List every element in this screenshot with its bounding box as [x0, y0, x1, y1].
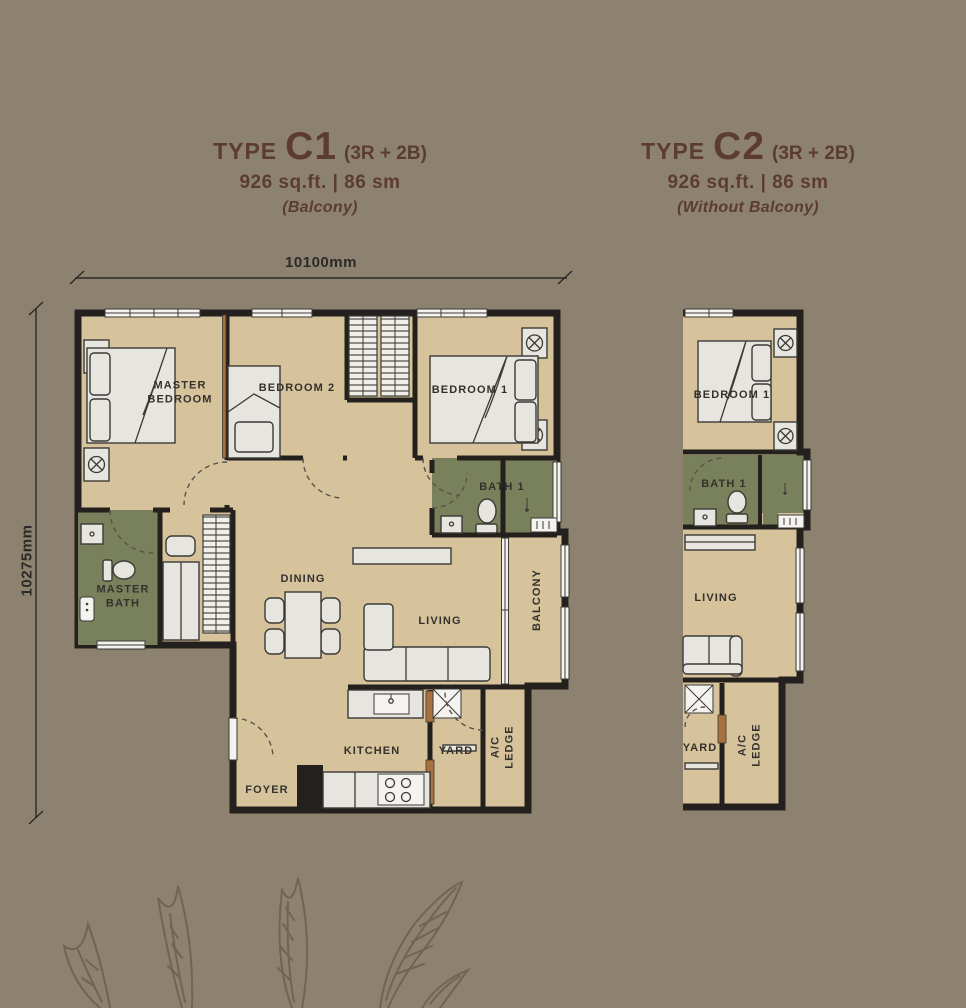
- c1-label-kitchen: KITCHEN: [327, 744, 417, 758]
- type-c2-area: 926 sq.ft. | 86 sm: [553, 172, 943, 194]
- type-c1-config: (3R + 2B): [344, 143, 427, 164]
- c1-label-dining: DINING: [258, 572, 348, 586]
- c1-labels: MASTER BEDROOM BEDROOM 2 BEDROOM 1 BATH …: [75, 310, 571, 816]
- type-c1-code: C1: [285, 125, 337, 168]
- width-dimension-line: [73, 252, 569, 286]
- type-c2-code: C2: [713, 125, 765, 168]
- height-dimension-line: [12, 306, 46, 820]
- type-c1-note: (Balcony): [120, 199, 520, 217]
- c1-label-living: LIVING: [395, 614, 485, 628]
- c1-label-yard: YARD: [426, 744, 486, 758]
- c1-label-bedroom-1: BEDROOM 1: [430, 383, 510, 397]
- type-c2-note: (Without Balcony): [553, 199, 943, 217]
- type-c1-title: TYPEC1(3R + 2B): [120, 125, 520, 169]
- c2-label-ac-ledge: A/C LEDGE: [736, 721, 765, 769]
- leaf-decoration-icon: [30, 862, 480, 1008]
- type-c1-type-label: TYPE: [213, 138, 277, 164]
- c2-label-bedroom-1: BEDROOM 1: [690, 388, 774, 402]
- c1-label-bath-1: BATH 1: [467, 480, 537, 494]
- c2-label-yard: YARD: [670, 741, 730, 755]
- c1-label-bedroom-2: BEDROOM 2: [257, 381, 337, 395]
- type-c1-title-block: TYPEC1(3R + 2B) 926 sq.ft. | 86 sm (Balc…: [120, 125, 520, 217]
- type-c1-area: 926 sq.ft. | 86 sm: [120, 172, 520, 194]
- type-c2-title: TYPEC2(3R + 2B): [553, 125, 943, 169]
- type-c2-title-block: TYPEC2(3R + 2B) 926 sq.ft. | 86 sm (With…: [553, 125, 943, 217]
- c2-label-bath-1: BATH 1: [689, 477, 759, 491]
- type-c2-config: (3R + 2B): [772, 143, 855, 164]
- type-c2-type-label: TYPE: [641, 138, 705, 164]
- c2-label-living: LIVING: [671, 591, 761, 605]
- c1-label-foyer: FOYER: [232, 783, 302, 797]
- c1-label-master-bath: MASTER BATH: [87, 583, 159, 612]
- c1-label-balcony: BALCONY: [530, 555, 544, 645]
- floorplan-page: TYPEC1(3R + 2B) 926 sq.ft. | 86 sm (Balc…: [0, 0, 966, 1008]
- c2-labels: BEDROOM 1 BATH 1 LIVING YARD A/C LEDGE: [660, 295, 820, 815]
- c1-label-master-bedroom: MASTER BEDROOM: [134, 379, 226, 408]
- c1-label-ac-ledge: A/C LEDGE: [489, 723, 518, 771]
